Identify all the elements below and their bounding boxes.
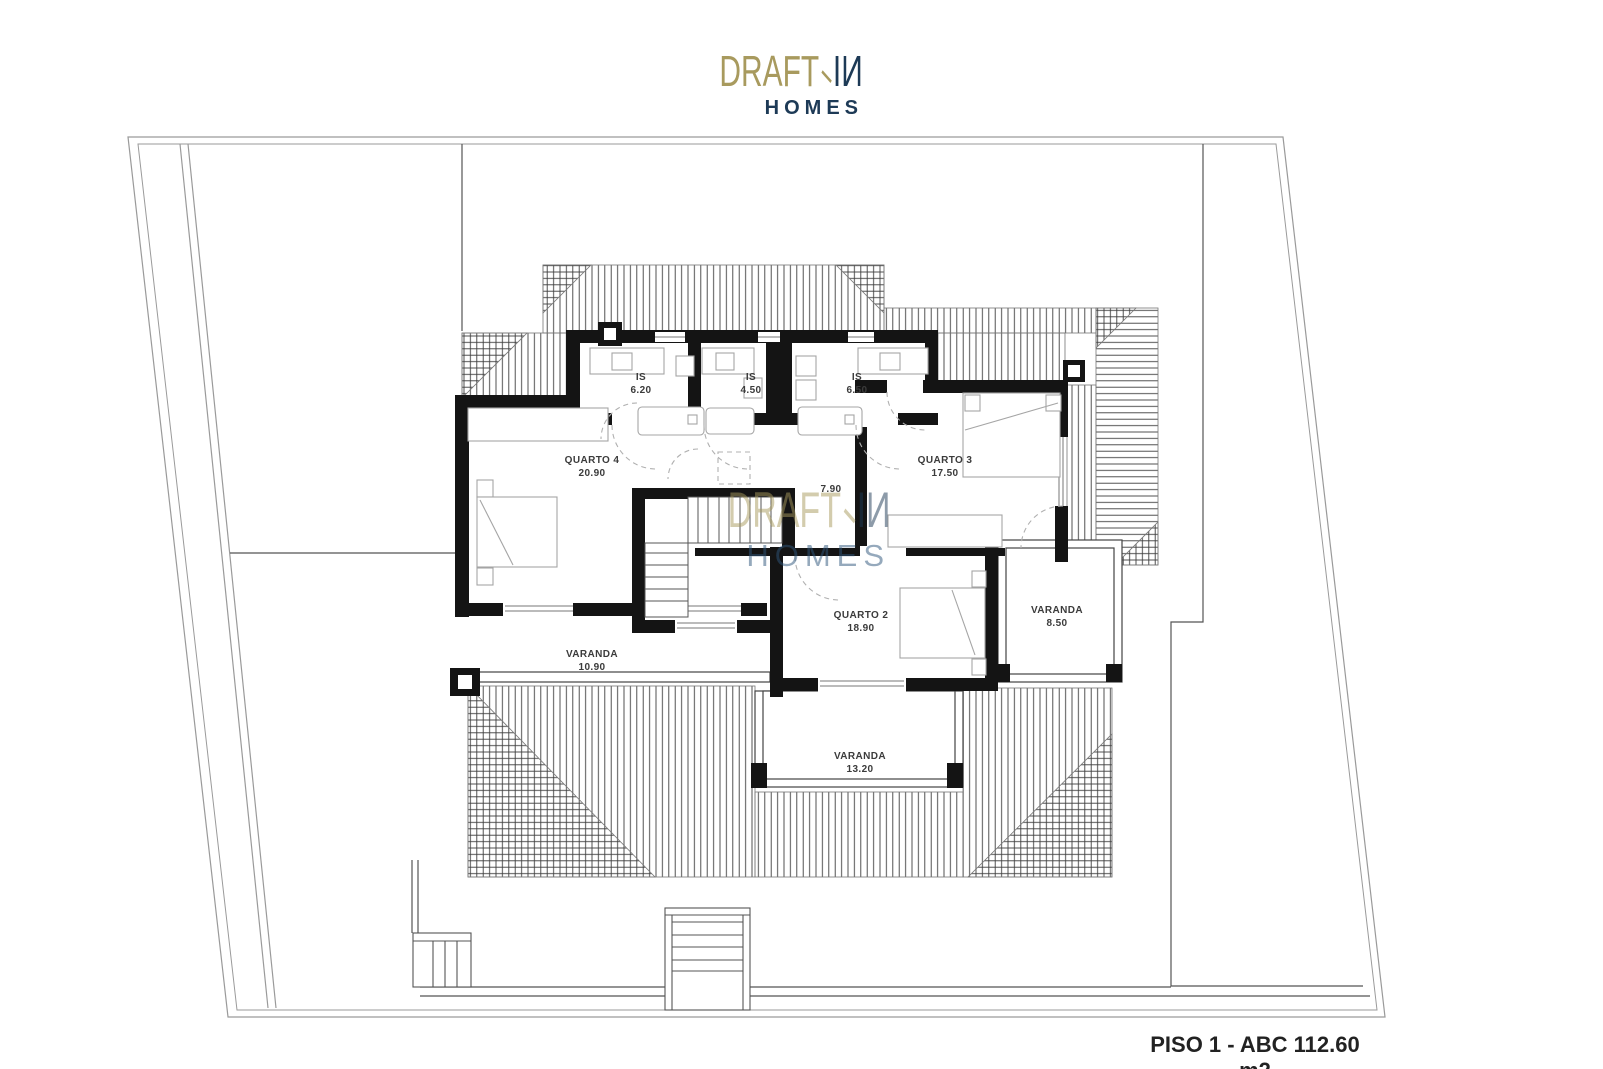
room-area: 10.90	[566, 662, 618, 675]
room-area: 6.50	[846, 385, 867, 398]
brand-slash-icon	[822, 70, 832, 83]
room-area: 13.20	[834, 764, 886, 777]
plan-caption: PISO 1 - ABC 112.60 m2	[1140, 1032, 1370, 1069]
room-name: VARANDA	[566, 649, 618, 662]
brand-wordmark: DRAFTIИ	[720, 50, 863, 94]
room-name: QUARTO 4	[565, 455, 620, 468]
brand-word-draft: DRAFT	[720, 47, 820, 96]
room-label-hall: 7.90	[820, 484, 841, 497]
exterior-stairs	[413, 908, 750, 1010]
room-label-varanda-1320: VARANDA 13.20	[834, 751, 886, 776]
room-area: 18.90	[834, 623, 889, 636]
room-area: 8.50	[1031, 618, 1083, 631]
room-label-is-3: IS 6.50	[846, 372, 867, 397]
room-name: QUARTO 2	[834, 610, 889, 623]
room-name: VARANDA	[834, 751, 886, 764]
room-name: IS	[846, 372, 867, 385]
room-area: 20.90	[565, 468, 620, 481]
room-name: IS	[630, 372, 651, 385]
room-label-varanda-850: VARANDA 8.50	[1031, 605, 1083, 630]
room-area: 6.20	[630, 385, 651, 398]
floorplan-page: DRAFTIИ HOMES DRAFTIИ HOMES IS 6.20 IS 4…	[0, 0, 1603, 1069]
room-label-is-2: IS 4.50	[740, 372, 761, 397]
watermark-wordmark: DRAFTIИ	[727, 485, 890, 535]
room-label-quarto-3: QUARTO 3 17.50	[918, 455, 973, 480]
room-label-quarto-4: QUARTO 4 20.90	[565, 455, 620, 480]
watermark-slash-icon	[843, 509, 855, 524]
room-label-quarto-2: QUARTO 2 18.90	[834, 610, 889, 635]
room-area: 4.50	[740, 385, 761, 398]
watermark-logo: DRAFTIИ HOMES	[651, 485, 891, 574]
room-area: 17.50	[918, 468, 973, 481]
room-label-varanda-1090: VARANDA 10.90	[566, 649, 618, 674]
brand-homes: HOMES	[652, 97, 863, 120]
room-name: VARANDA	[1031, 605, 1083, 618]
room-name: IS	[740, 372, 761, 385]
room-label-is-1: IS 6.20	[630, 372, 651, 397]
watermark-word-in: IИ	[856, 482, 890, 538]
room-area: 7.90	[820, 484, 841, 497]
brand-word-in: IИ	[833, 47, 863, 96]
watermark-homes: HOMES	[651, 538, 891, 574]
brand-logo: DRAFTIИ HOMES	[652, 50, 863, 120]
room-name: QUARTO 3	[918, 455, 973, 468]
